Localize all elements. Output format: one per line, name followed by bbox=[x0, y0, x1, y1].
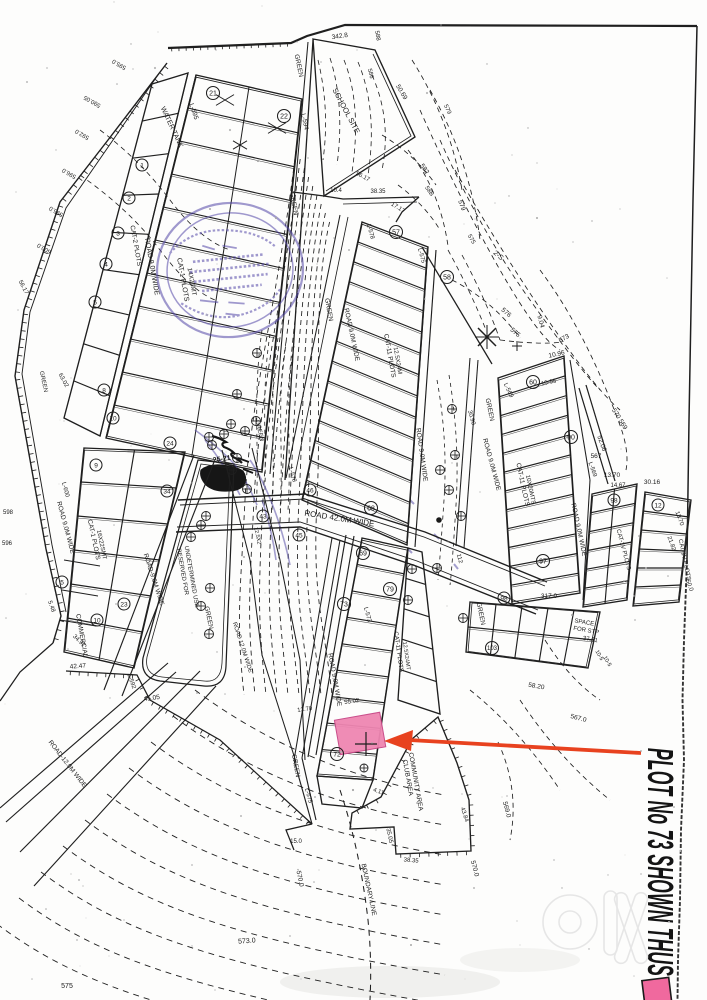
svg-text:90: 90 bbox=[567, 435, 575, 442]
svg-text:4: 4 bbox=[104, 261, 108, 268]
svg-text:15.0: 15.0 bbox=[290, 839, 302, 845]
svg-text:57: 57 bbox=[392, 230, 400, 237]
svg-text:97: 97 bbox=[539, 559, 547, 566]
svg-text:23: 23 bbox=[120, 601, 128, 608]
svg-text:68: 68 bbox=[367, 506, 375, 513]
svg-text:14.67: 14.67 bbox=[610, 483, 626, 489]
svg-text:5: 5 bbox=[60, 579, 64, 586]
svg-text:12: 12 bbox=[654, 502, 662, 509]
svg-text:22: 22 bbox=[280, 114, 288, 121]
svg-text:10: 10 bbox=[109, 415, 117, 422]
svg-text:596: 596 bbox=[2, 541, 13, 547]
svg-text:38.35: 38.35 bbox=[370, 189, 386, 195]
svg-text:PLOT No 73 SHOWN THUS: PLOT No 73 SHOWN THUS bbox=[640, 748, 681, 976]
svg-text:10: 10 bbox=[93, 617, 101, 624]
svg-text:72: 72 bbox=[333, 751, 341, 758]
svg-text:567: 567 bbox=[591, 453, 602, 460]
svg-text:573.0: 573.0 bbox=[238, 937, 256, 945]
svg-text:3: 3 bbox=[116, 230, 120, 237]
svg-text:58: 58 bbox=[443, 275, 451, 282]
svg-text:69: 69 bbox=[359, 551, 367, 558]
svg-text:30.16: 30.16 bbox=[644, 479, 661, 486]
svg-text:46: 46 bbox=[306, 487, 314, 494]
svg-text:9: 9 bbox=[94, 462, 98, 469]
svg-text:98: 98 bbox=[610, 497, 618, 504]
svg-text:13.70: 13.70 bbox=[604, 472, 621, 479]
svg-text:79: 79 bbox=[386, 587, 394, 594]
svg-text:598: 598 bbox=[3, 510, 14, 516]
svg-text:24: 24 bbox=[166, 440, 174, 447]
svg-text:2: 2 bbox=[127, 195, 131, 202]
svg-text:73: 73 bbox=[340, 602, 348, 609]
svg-text:21: 21 bbox=[209, 91, 217, 98]
svg-text:317.0: 317.0 bbox=[541, 593, 558, 600]
svg-text:98: 98 bbox=[500, 595, 508, 602]
svg-text:60: 60 bbox=[529, 380, 537, 387]
svg-text:42.47: 42.47 bbox=[70, 662, 87, 670]
svg-text:10.4: 10.4 bbox=[330, 188, 342, 194]
svg-text:34: 34 bbox=[163, 488, 171, 495]
svg-text:103: 103 bbox=[487, 646, 498, 652]
svg-text:43: 43 bbox=[259, 513, 267, 520]
svg-text:45: 45 bbox=[295, 532, 303, 539]
svg-text:5: 5 bbox=[93, 299, 97, 306]
svg-text:575: 575 bbox=[61, 983, 73, 990]
svg-text:8: 8 bbox=[102, 387, 106, 394]
